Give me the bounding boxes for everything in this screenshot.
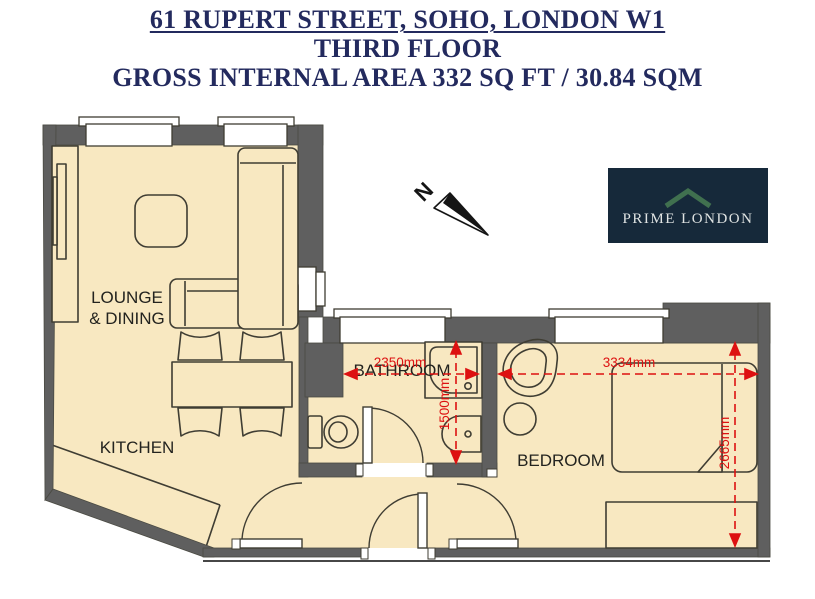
tv-screen [53, 177, 57, 245]
toilet [308, 416, 358, 448]
wall-bathroom-bottom-left [299, 463, 362, 477]
bedroom-label: BEDROOM [517, 451, 605, 470]
coffee-table [135, 195, 187, 247]
tv [57, 164, 66, 259]
lounge-window-2 [224, 124, 287, 146]
bathroom-depth-dim: 1500mm [437, 378, 452, 431]
wall-bottom-left [203, 548, 367, 557]
bedside-stool [504, 403, 536, 435]
lounge-window-1 [86, 124, 172, 146]
lounge-label-line1: LOUNGE [91, 288, 163, 307]
floorplan-canvas: LOUNGE & DINING KITCHEN BATHROOM BEDROOM… [0, 0, 815, 599]
lounge-label-line2: & DINING [89, 309, 165, 328]
wall-wing-top-step [663, 303, 770, 343]
duct-block [305, 343, 343, 397]
wall-bottom-right [430, 548, 770, 557]
bathroom-width-dim: 2350mm [374, 355, 427, 370]
wall-right [758, 303, 770, 557]
bedroom-width-dim: 3334mm [603, 355, 656, 370]
agency-logo: PRIME LONDON [608, 168, 768, 243]
lounge-side-window [297, 267, 316, 311]
logo-background [608, 168, 768, 243]
lounge-side-window-sill [316, 272, 325, 306]
bathroom-window [340, 317, 445, 343]
wall-bathroom-bedroom [482, 343, 497, 477]
dining-table [172, 362, 292, 407]
hallway-floor [299, 477, 497, 548]
bedroom-window [555, 317, 663, 343]
logo-text: PRIME LONDON [623, 211, 754, 227]
north-label: N [409, 177, 438, 206]
kitchen-label: KITCHEN [100, 438, 175, 457]
bedroom-depth-dim: 2665mm [717, 417, 732, 470]
north-arrow: N [409, 177, 488, 235]
